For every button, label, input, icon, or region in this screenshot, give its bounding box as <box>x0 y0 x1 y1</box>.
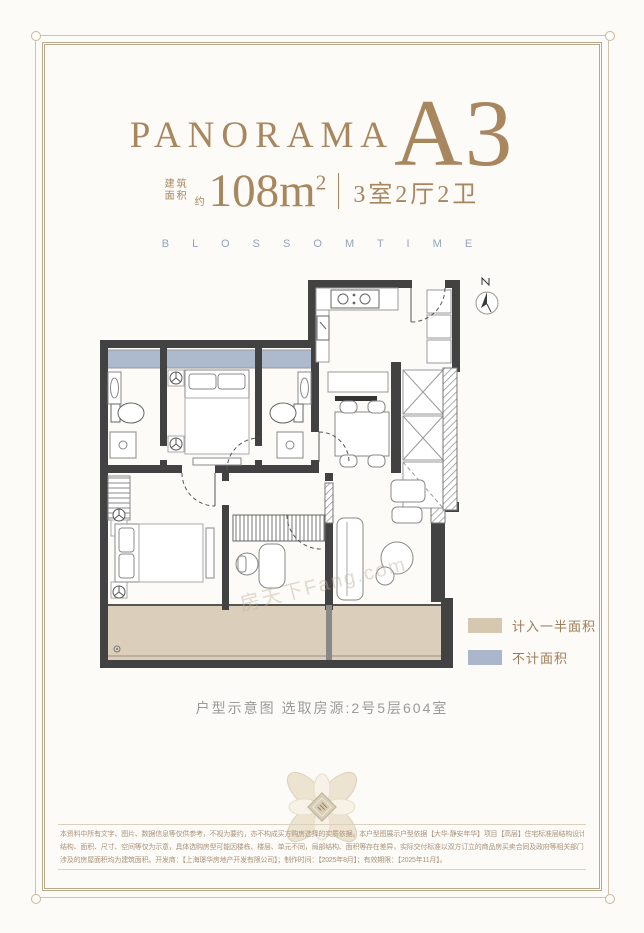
area-value: 108m2 <box>209 168 327 215</box>
footer-divider-bottom <box>58 869 586 870</box>
legend-item-excluded-area: 不计面积 <box>468 648 618 667</box>
footer-divider-top <box>58 824 586 825</box>
legend: 计入一半面积 不计面积 <box>468 616 618 680</box>
balcony-divider-wall <box>326 605 332 660</box>
bathroom-2 <box>270 372 311 458</box>
bay-window-area-excluded <box>108 350 311 368</box>
compass-icon <box>476 278 498 314</box>
disclaimer-line-2: 结构、面积、尺寸、空间等仅为示意，具体选购房型可能因楼栋、楼层、单元不同，局部结… <box>60 841 584 854</box>
layout-text: 3室2厅2卫 <box>353 174 479 209</box>
area-label: 建筑 面积 <box>165 179 189 203</box>
spec-divider <box>338 173 339 209</box>
unit-code: A3 <box>394 96 514 170</box>
excluded-area-swatch <box>468 650 502 665</box>
area-approx: 约 <box>189 193 209 215</box>
balcony-half-area <box>108 605 441 660</box>
frame-corner-ornament <box>605 894 615 904</box>
kitchen-island <box>328 372 388 401</box>
hatched-shaft-wall <box>443 368 457 510</box>
kitchen <box>316 288 398 362</box>
spec-row: 建筑 面积 约 108m2 3室2厅2卫 <box>0 167 644 215</box>
disclaimer-line-1: 本资料中所有文字、图片、数据信息等仅供参考，不视为要约，亦不构成买方购房选择的实… <box>60 828 584 841</box>
master-bedroom <box>108 476 214 598</box>
half-area-label: 计入一半面积 <box>512 616 596 635</box>
excluded-area-label: 不计面积 <box>512 648 568 667</box>
dining-table <box>335 401 389 467</box>
legend-item-half-area: 计入一半面积 <box>468 616 618 635</box>
kitchen-shelves <box>427 290 451 363</box>
header: PANORAMA A3 <box>0 66 644 170</box>
half-area-swatch <box>468 618 502 633</box>
disclaimer-line-3: 涉及的房屋面积均为建筑面积。开发商：【上海璟华房地产开发有限公司】；制作时间：【… <box>60 854 584 867</box>
frame-corner-ornament <box>31 894 41 904</box>
frame-corner-ornament <box>605 31 615 41</box>
bedroom-2 <box>168 370 249 465</box>
disclaimer: 本资料中所有文字、图片、数据信息等仅供参考，不视为要约，亦不构成买方购房选择的实… <box>60 828 584 867</box>
bathroom-1 <box>108 372 144 458</box>
frame-corner-ornament <box>31 31 41 41</box>
floor-plan: 房天下Fang.com <box>95 272 505 672</box>
hatched-wall <box>325 483 333 523</box>
tagline: B L O S S O M T I M E <box>0 238 644 250</box>
brand-title: PANORAMA <box>130 114 394 170</box>
plan-caption: 户型示意图 选取房源:2号5层604室 <box>0 698 644 718</box>
